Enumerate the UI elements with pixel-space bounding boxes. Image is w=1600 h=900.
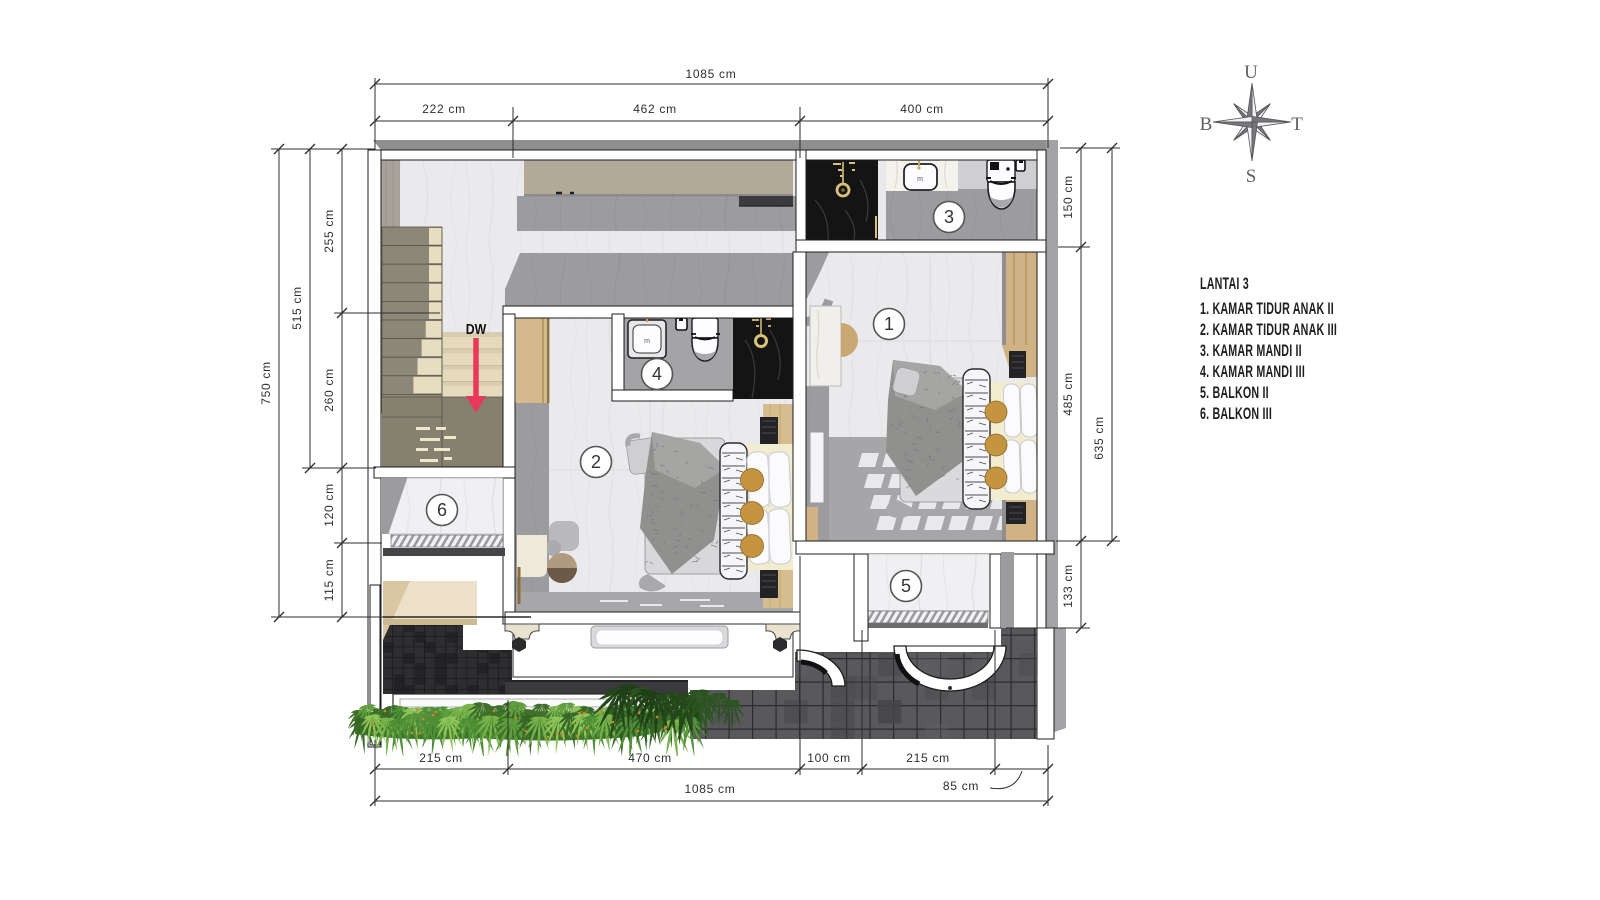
svg-text:215 cm: 215 cm	[906, 751, 950, 765]
svg-text:635 cm: 635 cm	[1092, 416, 1106, 460]
svg-text:750 cm: 750 cm	[259, 361, 273, 405]
svg-text:DW: DW	[466, 321, 487, 337]
svg-text:255 cm: 255 cm	[322, 209, 336, 253]
svg-text:3: 3	[944, 207, 954, 227]
svg-text:U: U	[1244, 62, 1258, 83]
svg-text:B: B	[1200, 114, 1213, 135]
svg-text:T: T	[1291, 114, 1303, 135]
svg-text:222 cm: 222 cm	[422, 102, 466, 116]
svg-text:LANTAI 3: LANTAI 3	[1200, 275, 1249, 294]
svg-text:1: 1	[884, 314, 894, 334]
svg-text:470 cm: 470 cm	[628, 751, 672, 765]
svg-text:m: m	[917, 176, 923, 183]
svg-text:115 cm: 115 cm	[322, 559, 336, 602]
svg-text:6: 6	[437, 500, 447, 520]
svg-text:2: 2	[591, 452, 601, 472]
svg-text:85 cm: 85 cm	[943, 779, 979, 793]
svg-text:5: 5	[901, 576, 911, 596]
svg-text:215 cm: 215 cm	[419, 751, 463, 765]
svg-text:150 cm: 150 cm	[1061, 175, 1075, 219]
svg-text:260 cm: 260 cm	[322, 368, 336, 412]
svg-text:5. BALKON II: 5. BALKON II	[1200, 384, 1269, 403]
svg-text:100 cm: 100 cm	[807, 751, 851, 765]
svg-text:S: S	[1246, 166, 1257, 187]
svg-text:1085 cm: 1085 cm	[686, 67, 737, 81]
svg-text:120 cm: 120 cm	[322, 483, 336, 527]
svg-text:133 cm: 133 cm	[1061, 564, 1075, 608]
svg-text:400 cm: 400 cm	[900, 102, 944, 116]
svg-text:485 cm: 485 cm	[1061, 372, 1075, 416]
svg-text:6. BALKON III: 6. BALKON III	[1200, 405, 1272, 424]
svg-text:2. KAMAR TIDUR ANAK III: 2. KAMAR TIDUR ANAK III	[1200, 321, 1337, 340]
svg-text:3. KAMAR MANDI II: 3. KAMAR MANDI II	[1200, 342, 1302, 361]
svg-text:4: 4	[652, 364, 662, 384]
svg-text:1085 cm: 1085 cm	[685, 782, 736, 796]
svg-text:m: m	[644, 338, 650, 345]
svg-text:4. KAMAR MANDI III: 4. KAMAR MANDI III	[1200, 363, 1305, 382]
svg-text:515 cm: 515 cm	[290, 286, 304, 330]
svg-text:1. KAMAR TIDUR ANAK II: 1. KAMAR TIDUR ANAK II	[1200, 300, 1334, 319]
svg-text:462 cm: 462 cm	[633, 102, 677, 116]
